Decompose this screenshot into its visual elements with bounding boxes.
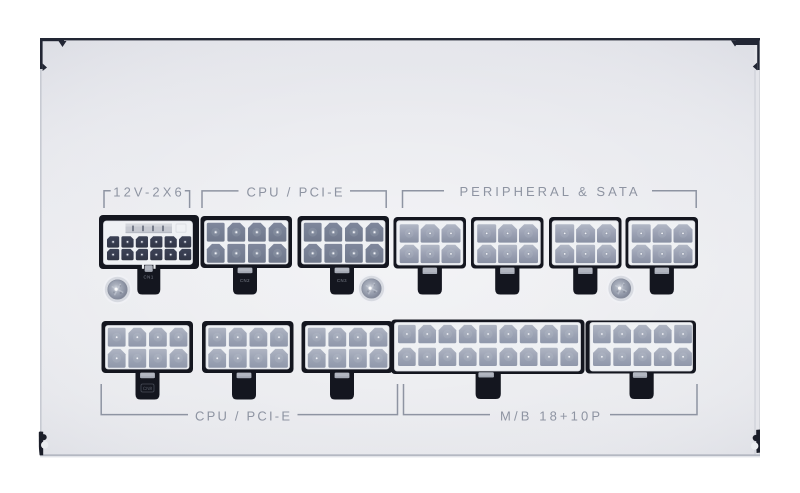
svg-text:CN2: CN2: [240, 278, 250, 283]
svg-text:CPU / PCI-E: CPU / PCI-E: [195, 409, 290, 424]
svg-text:CN8: CN8: [143, 386, 153, 391]
svg-text:CPU / PCI-E: CPU / PCI-E: [247, 184, 343, 199]
svg-text:CN3: CN3: [337, 278, 347, 283]
svg-text:CN1: CN1: [143, 275, 153, 280]
svg-text:M/B 18+10P: M/B 18+10P: [500, 409, 600, 424]
